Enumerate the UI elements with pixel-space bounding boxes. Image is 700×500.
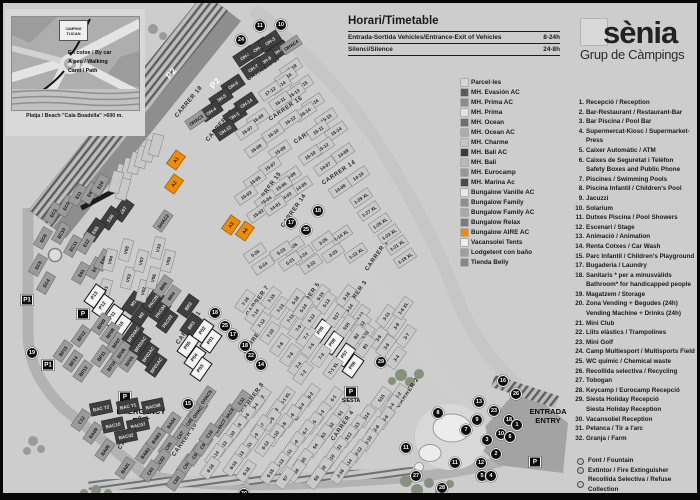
facility-text-line: Siesta Holiday Reception xyxy=(586,405,661,415)
street-label: CARRER 6 xyxy=(293,390,318,423)
street-label: CARRER 8 xyxy=(240,382,265,415)
map-plot: 8-15 xyxy=(223,454,243,477)
map-plot: 3-13 xyxy=(350,305,370,328)
facility-item: 17.Bugaderia / Laundry xyxy=(571,261,700,271)
map-plot: OH-2 xyxy=(246,37,270,59)
facility-text-line: Dutxes Piscina / Pool Showers xyxy=(586,213,678,223)
map-plot: B2 xyxy=(346,325,366,348)
map-plot: 7-15 xyxy=(261,287,281,310)
map-plot: EC5 xyxy=(29,254,48,276)
facility-marker: 5 xyxy=(476,470,488,482)
map-plot: BAC10 xyxy=(101,417,124,433)
map-plot: 15-04 xyxy=(254,190,277,210)
map-plot: P08 xyxy=(323,332,343,355)
map-plot: 8-2 xyxy=(251,387,271,410)
facility-number: 5. xyxy=(571,146,584,156)
map-plot: BA05 xyxy=(95,439,115,461)
facility-marker: 18 xyxy=(239,340,251,352)
map-plot: S14 xyxy=(356,405,376,428)
map-plot: S15 xyxy=(371,387,391,410)
map-plot: 5-15 xyxy=(310,285,330,308)
legend-item: MH. Marina Ac xyxy=(461,177,534,187)
facility-marker: 8 xyxy=(432,407,444,419)
map-plot: C09 xyxy=(193,434,213,456)
facility-number: 20. xyxy=(571,299,584,318)
facility-text-line: Bar-Restaurant / Restaurant-Bar xyxy=(586,108,682,118)
map-plot: 15-09 xyxy=(268,140,291,160)
legend-item-label: Bungalow Family AC xyxy=(471,209,534,216)
map-plot: 7-14 xyxy=(245,302,265,325)
map-plot: 8-1 XL xyxy=(275,387,295,410)
map-plot: V10 xyxy=(150,237,165,260)
map-plot: BF03AC xyxy=(129,332,151,356)
facilities-list: 1.Recepció / Reception2.Bar-Restaurant /… xyxy=(571,98,700,443)
map-plot: 7-11 xyxy=(280,307,300,330)
map-plot: 7-3 xyxy=(311,345,331,368)
map-plot: OH-6 xyxy=(221,74,245,96)
map-plot: A1 xyxy=(167,150,185,169)
facility-number: 10. xyxy=(571,204,584,214)
street-label: CARRER 15 xyxy=(255,171,283,207)
legend-swatch-icon xyxy=(461,109,468,116)
map-plot: 5-13 xyxy=(316,292,336,315)
facility-number: 28. xyxy=(571,386,584,396)
legend-swatch-icon xyxy=(461,119,468,126)
map-plot xyxy=(113,164,128,187)
map-plot xyxy=(127,152,142,175)
facility-text-line: Llits elàstics / Trampolines xyxy=(586,328,666,338)
facility-number: 12. xyxy=(571,223,584,233)
map-plot: 6-1 xyxy=(323,387,343,410)
facility-number: 6. xyxy=(571,156,584,175)
map-plot xyxy=(134,146,149,169)
facility-marker: 29 xyxy=(375,356,387,368)
facility-text-line: Keycamp / Eurocamp Recepció xyxy=(586,386,680,396)
map-plot: P06 xyxy=(343,355,363,378)
map-plot: OHAC6 xyxy=(188,400,208,422)
map-plot: 1-21 XL xyxy=(385,235,408,255)
map-plot: 15-12 xyxy=(311,137,334,157)
map-plot: 16-14 xyxy=(293,102,316,122)
map-plot: 6-5 xyxy=(303,412,323,435)
facility-text-line: Camp Multiesport / Multisports Field xyxy=(586,347,695,357)
map-plot: 8-5 xyxy=(261,409,281,432)
facility-number: 22. xyxy=(571,328,584,338)
map-plot: 3-8 xyxy=(368,327,388,350)
legend-swatch-icon xyxy=(461,139,468,146)
map-plot: 6-3 xyxy=(311,402,331,425)
facility-text-line: Magatzem / Storage xyxy=(586,290,645,300)
map-plot: 5-21 xyxy=(278,251,301,271)
legend-item-label: Bungalow Relax xyxy=(471,219,520,226)
facility-marker: 15 xyxy=(182,398,194,410)
legend-item: Lodgetent con baño xyxy=(461,247,534,257)
map-plot: BF02AC xyxy=(137,342,159,366)
timetable-row-value: 24-8h xyxy=(543,46,560,53)
facility-number: 19. xyxy=(571,290,584,300)
map-plot: 1-27 XL xyxy=(357,201,380,221)
facility-number: 31. xyxy=(571,424,584,434)
facility-item: 5.Caixer Automàtic / ATM xyxy=(571,146,700,156)
legend-list: Parcel·lesMH. Evasión ACMH. Prima ACMH. … xyxy=(461,77,534,267)
facility-text-line: Tobogan xyxy=(586,376,612,386)
facility-text-line: Escenari / Stage xyxy=(586,223,635,233)
facility-text: Recepció / Reception xyxy=(586,98,650,108)
map-plot: BAC07 xyxy=(126,417,149,433)
facility-text: Sanitaris * per a minusvàlidsBathroom* f… xyxy=(586,271,691,290)
map-plot: 3-4 xyxy=(386,347,406,370)
facility-item: 2.Bar-Restaurant / Restaurant-Bar xyxy=(571,108,700,118)
map-plot: BF14 xyxy=(63,350,83,372)
street-label: CARRER 5 xyxy=(296,282,321,315)
map-plot: P01 xyxy=(201,330,221,353)
facility-item: 10.Solarium xyxy=(571,204,700,214)
legend-item: Bungalow AIRE AC xyxy=(461,227,534,237)
map-plot: M1 xyxy=(122,291,144,315)
legend-item: MH. Prima xyxy=(461,107,534,117)
map-plot: 6-9 xyxy=(285,432,305,455)
facility-item: 14.Renta Cotxes / Car Wash xyxy=(571,242,700,252)
facility-text: Vacansoliel Reception xyxy=(586,415,653,425)
timetable-rows: Entrada-Sortida Vehicles/Entrance-Exit o… xyxy=(348,31,560,56)
legend-item: Bungalow Family AC xyxy=(461,207,534,217)
map-plot: 7-5 xyxy=(301,335,321,358)
map-plot: OHAC5 xyxy=(196,386,216,408)
facility-number: 13. xyxy=(571,232,584,242)
map-plot: A3 xyxy=(222,215,240,234)
map-plot: 8-11 xyxy=(238,435,258,458)
map-plot: 1-23 XL xyxy=(377,224,400,244)
timetable-row: Silenci/Silence24-8h xyxy=(348,43,560,55)
map-plot: 8-6 xyxy=(236,405,256,428)
map-plot: 1-19 XL xyxy=(393,248,416,268)
facility-number: 9. xyxy=(571,194,584,204)
map-plot: 16-15 xyxy=(290,75,313,95)
legend-item-label: MH. Prima xyxy=(471,109,502,116)
facility-number: 1. xyxy=(571,98,584,108)
map-plot: 16-10 xyxy=(261,123,284,143)
map-plot: BF15 xyxy=(53,340,73,362)
map-plot: 2-4 xyxy=(381,395,401,418)
timetable-row: Entrada-Sortida Vehicles/Entrance-Exit o… xyxy=(348,31,560,43)
parking-badge: P1 xyxy=(21,295,33,306)
facility-item: 7.Piscines / Swimming Pools xyxy=(571,175,700,185)
facility-marker: 26 xyxy=(510,388,522,400)
map-plot xyxy=(148,134,163,157)
facility-text: Llits elàstics / Trampolines xyxy=(586,328,666,338)
map-plot: BAC T2 xyxy=(89,400,112,416)
map-plot: 5-12 xyxy=(301,307,321,330)
facility-text-line: Zona Vending + Begudes (24h) xyxy=(586,299,681,309)
facility-text-line: Caixes de Seguretat i Telèfon xyxy=(586,156,680,166)
facility-text: Mini Club xyxy=(586,319,614,329)
map-plot: V03 xyxy=(120,267,135,290)
map-plot: 15-05 xyxy=(243,170,266,190)
legend-item-label: Tienda Belly xyxy=(471,259,509,266)
map-plot xyxy=(115,178,130,201)
map-plot: C12 xyxy=(71,409,91,431)
map-plot: BAC08 xyxy=(141,398,164,414)
legend-swatch-icon xyxy=(461,169,468,176)
map-plot: E67 xyxy=(112,198,134,222)
map-plot: E66 xyxy=(99,206,121,230)
facility-text-line: Mini Club xyxy=(586,319,614,329)
map-plot: BA04 xyxy=(161,412,181,434)
facility-item: 22.Llits elàstics / Trampolines xyxy=(571,328,700,338)
street-label: CARRER 12 xyxy=(117,415,145,451)
facility-text-line: Safety Boxes and Public Phone xyxy=(586,165,680,175)
legend-item-label: Parcel·les xyxy=(471,79,501,86)
legend-swatch-icon xyxy=(461,259,468,266)
facility-text: Bar Piscina / Pool Bar xyxy=(586,117,651,127)
map-plot: 15-02 xyxy=(246,203,269,223)
map-plot: 8-9 xyxy=(245,425,265,448)
map-plot: DHAC2 xyxy=(153,210,173,232)
facility-number: 14. xyxy=(571,242,584,252)
facility-text: Recollida selectiva / Recycling xyxy=(586,367,677,377)
street-label: CARRER 17 xyxy=(205,109,235,143)
map-plot: OH-14 xyxy=(234,92,258,114)
map-plot: 15-06 xyxy=(269,176,292,196)
map-plot: 7-12 xyxy=(251,312,271,335)
map-plot: M2 xyxy=(130,303,152,327)
facility-item: 1.Recepció / Reception xyxy=(571,98,700,108)
legend-swatch-icon xyxy=(461,129,468,136)
facility-text: Caixer Automàtic / ATM xyxy=(586,146,656,156)
map-plot: OHAC4 xyxy=(280,35,302,54)
map-plot: C05 xyxy=(158,435,178,457)
facility-item: 11.Dutxes Piscina / Pool Showers xyxy=(571,213,700,223)
facility-number: 27. xyxy=(571,376,584,386)
inset-legend-line: Camí / Path xyxy=(68,67,111,76)
map-plot: 15-14 xyxy=(324,121,347,141)
map-plot: P07 xyxy=(335,344,355,367)
facility-item: 6.Caixes de Seguretat i TelèfonSafety Bo… xyxy=(571,156,700,175)
facility-text: Petanca / Tir a l'arc xyxy=(586,424,643,434)
facility-text-line: Siesta Holiday Recepció xyxy=(586,395,661,405)
map-plot: 8-12 xyxy=(213,434,233,457)
facility-number: 25. xyxy=(571,357,584,367)
map-plot: 14-08 xyxy=(328,178,351,198)
facility-text-line: Sanitaris * per a minusvàlids xyxy=(586,271,691,281)
map-plot: 7-16 xyxy=(235,290,255,313)
facility-marker: 24 xyxy=(235,34,247,46)
facility-text-line: WC químic / Chemical waste xyxy=(586,357,671,367)
facility-text: Bugaderia / Laundry xyxy=(586,261,647,271)
map-plot: A4 xyxy=(236,221,254,240)
facility-item: 8.Piscina Infantil / Children's Pool xyxy=(571,184,700,194)
facility-item: 29.Siesta Holiday RecepcióSiesta Holiday… xyxy=(571,395,700,414)
legend-swatch-icon xyxy=(461,219,468,226)
facility-number: 3. xyxy=(571,117,584,127)
timetable-panel: Horari/Timetable Entrada-Sortida Vehicle… xyxy=(348,15,560,56)
map-plot: P10 xyxy=(111,315,131,338)
map-plot: BR2 xyxy=(177,294,199,318)
facility-marker: 11 xyxy=(254,20,266,32)
map-plot: EC9 xyxy=(57,195,76,217)
legend-item: Bungalow Family xyxy=(461,197,534,207)
map-plot: 3-12 xyxy=(351,314,371,337)
parking-badge: P xyxy=(529,457,541,468)
facility-text-line: Petanca / Tir a l'arc xyxy=(586,424,643,434)
map-plot: S17 xyxy=(326,305,346,328)
map-plot: C03 xyxy=(166,469,186,491)
street-label: CARRER 16 xyxy=(268,95,304,122)
map-plot: 17-14 xyxy=(268,75,291,95)
map-plot: V06 xyxy=(145,267,160,290)
map-plot: 16-13 xyxy=(282,83,305,103)
legend-item: MH. Bali AC xyxy=(461,147,534,157)
map-plot: 7-10 xyxy=(260,322,280,345)
facility-item: 23.Mini Golf xyxy=(571,338,700,348)
facility-marker: 22 xyxy=(245,350,257,362)
map-plot: 3-7 xyxy=(396,325,416,348)
map-plot: 5-23 xyxy=(269,241,292,261)
map-plot: 7-9 xyxy=(288,317,308,340)
facility-item: 13.Animació / Animation xyxy=(571,232,700,242)
map-plot: 1-6 XL xyxy=(393,297,413,320)
facility-text: Camp Multiesport / Multisports Field xyxy=(586,347,695,357)
facility-text: Siesta Holiday RecepcióSiesta Holiday Re… xyxy=(586,395,661,414)
map-plot: EC10 xyxy=(52,222,71,244)
map-plot: BAC02 xyxy=(114,428,137,444)
symbol-label: Recollida Selectiva / Refuse Collection xyxy=(588,475,700,494)
map-plot: BA09 xyxy=(83,422,103,444)
map-plot: E65 xyxy=(84,218,106,242)
legend-item-label: MH. Marina Ac xyxy=(471,179,515,186)
map-plot: P11 xyxy=(103,305,123,328)
facility-marker: 7 xyxy=(460,424,472,436)
facility-text-line: Bathroom* for handicapped people xyxy=(586,280,691,290)
map-plot: 14-10 xyxy=(346,166,369,186)
map-plot: BAC T1 xyxy=(116,398,139,414)
map-plot: OH-1 xyxy=(233,45,257,67)
map-plot: 6-6 xyxy=(281,405,301,428)
map-plot: 5-16 xyxy=(285,289,305,312)
timetable-row-value: 8-24h xyxy=(543,34,560,41)
map-plot: C10 xyxy=(199,423,219,445)
facility-item: 20.Zona Vending + Begudes (24h)Vending M… xyxy=(571,299,700,318)
facility-text: Piscina Infantil / Children's Pool xyxy=(586,184,682,194)
map-plot: 8-14 xyxy=(205,444,225,467)
map-plot: BR5 xyxy=(153,275,173,297)
legend-item-label: Bungalow AIRE AC xyxy=(471,229,529,236)
map-plot xyxy=(120,158,135,181)
facility-number: 32. xyxy=(571,434,584,444)
facility-text-line: Mini Golf xyxy=(586,338,613,348)
map-plot: C07 xyxy=(170,424,190,446)
map-plot: 15-08 xyxy=(278,166,301,186)
facility-marker: 25 xyxy=(219,320,231,332)
street-label: CARRER 18 xyxy=(174,85,204,119)
facility-number: 17. xyxy=(571,261,584,271)
facility-text: Parc Infantil / Children's Playground xyxy=(586,252,694,262)
map-plot: 17-18 xyxy=(279,58,302,78)
street-label: CARRER 4 xyxy=(330,410,355,443)
symbol-label: Font / Fountain xyxy=(588,456,633,466)
facility-text-line: Renta Cotxes / Car Wash xyxy=(586,242,660,252)
facility-marker: 14 xyxy=(255,359,267,371)
map-plot: 17-16 xyxy=(274,67,297,87)
parking-area-label: P2 xyxy=(208,75,223,90)
map-plot: S11 xyxy=(328,437,348,460)
legend-swatch-icon xyxy=(461,239,468,246)
map-plot: S13 xyxy=(346,415,366,438)
map-plot: V07 xyxy=(133,250,148,273)
facility-text-line: Bugaderia / Laundry xyxy=(586,261,647,271)
map-plot: S1 xyxy=(330,402,350,425)
facility-number: 15. xyxy=(571,252,584,262)
facility-text: Supermercat-Kiosc / Supermarket-Press xyxy=(586,127,700,146)
map-plot: 7-1 XL xyxy=(323,357,343,380)
facility-text: Jacuzzi xyxy=(586,194,608,204)
map-plot xyxy=(108,171,123,194)
map-plot: V02 xyxy=(135,280,150,303)
map-plot: OH-4 xyxy=(199,100,223,122)
facility-marker: 18 xyxy=(312,205,324,217)
facility-marker: 4 xyxy=(485,470,497,482)
map-plot: 5-24 xyxy=(251,255,274,275)
map-plot: 6-7 xyxy=(295,420,315,443)
street-label: CARRER 17 xyxy=(246,55,282,82)
map-plot: V01 xyxy=(97,279,112,302)
facility-item: 30.Vacansoliel Reception xyxy=(571,415,700,425)
map-plot: 6-13 xyxy=(270,452,290,475)
facility-text: Solarium xyxy=(586,204,613,214)
facility-marker: 27 xyxy=(410,470,422,482)
map-plot: 15-10 xyxy=(298,145,321,165)
facility-item: 12.Escenari / Stage xyxy=(571,223,700,233)
map-plot: S7 xyxy=(275,467,295,490)
map-symbol-icon xyxy=(577,458,584,465)
legend-item: MH. Prima AC xyxy=(461,97,534,107)
facility-text-line: Granja / Farm xyxy=(586,434,627,444)
map-plot: 14-07 xyxy=(313,156,336,176)
legend-swatch-icon xyxy=(461,149,468,156)
map-plot: 3-25 xyxy=(311,231,334,251)
map-plot: 7-4 xyxy=(288,354,308,377)
map-plot: 6-2 xyxy=(300,384,320,407)
map-plot: 2-8 xyxy=(366,417,386,440)
map-plot: BF10 xyxy=(101,355,121,377)
map-plot: S12 xyxy=(338,425,358,448)
facility-text: Mini Golf xyxy=(586,338,613,348)
facility-number: 21. xyxy=(571,319,584,329)
tucan-badge-line2: TUCAN xyxy=(60,32,87,36)
facility-marker: 25 xyxy=(300,224,312,236)
map-plot: 6-16 xyxy=(236,460,256,483)
map-plot: 2-14 xyxy=(338,452,358,475)
facility-item: 32.Granja / Farm xyxy=(571,434,700,444)
street-label: CARRER 14 xyxy=(280,193,308,229)
map-plot: BF11 xyxy=(91,345,111,367)
facility-text-line: Supermercat-Kiosc / Supermarket-Press xyxy=(586,127,700,146)
map-plot: C11 xyxy=(231,390,251,412)
inset-map: CAMPING TUCAN En cotxe / By carA peu / W… xyxy=(11,16,140,111)
map-plot: 8-3 xyxy=(265,400,285,423)
campsite-map-page: CARRER 18CARRER 17CARRER 17CARRER 16CARR… xyxy=(0,0,700,500)
facility-text-line: Recepció / Reception xyxy=(586,98,650,108)
facility-text-line: Piscines / Swimming Pools xyxy=(586,175,667,185)
legend-item-label: Vacansolei Tents xyxy=(471,239,522,246)
map-plot: BF13 xyxy=(73,360,93,382)
map-plot: P12 xyxy=(93,295,113,318)
map-symbol-icon xyxy=(577,467,584,474)
facility-number: 8. xyxy=(571,184,584,194)
legend-item: Vacansolei Tents xyxy=(461,237,534,247)
facility-number: 23. xyxy=(571,338,584,348)
map-plot: E08 xyxy=(94,249,113,271)
